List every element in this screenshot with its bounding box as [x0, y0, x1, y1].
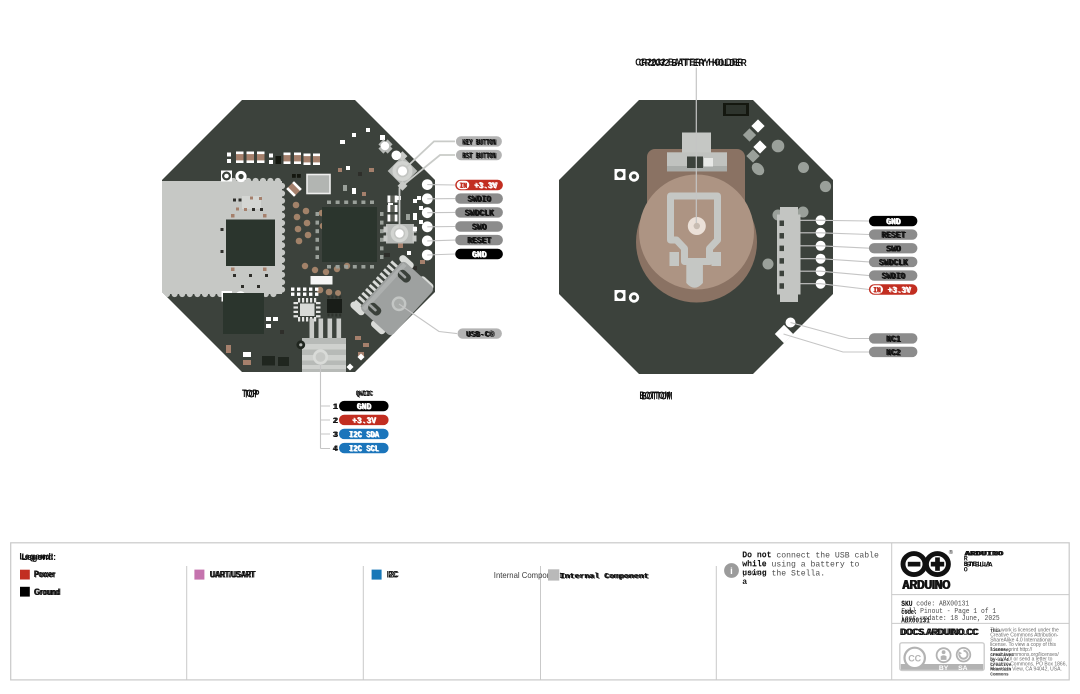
svg-text:Power: Power [35, 569, 56, 580]
svg-text:4: 4 [334, 444, 339, 454]
svg-text:Do not: Do not [742, 551, 771, 560]
svg-text:I2C SCL: I2C SCL [350, 444, 380, 454]
svg-text:+3.3V: +3.3V [889, 286, 913, 296]
svg-text:+3.3V: +3.3V [353, 416, 378, 426]
svg-text:SWDIO: SWDIO [883, 272, 907, 282]
svg-text:GND: GND [887, 217, 902, 227]
svg-text:+3.3V: +3.3V [475, 181, 499, 191]
svg-text:SWDIO: SWDIO [468, 195, 492, 205]
svg-text:a: a [742, 578, 747, 587]
svg-text:CC: CC [908, 653, 921, 663]
svg-text:SWO: SWO [887, 245, 902, 255]
svg-text:ARDUINO: ARDUINO [903, 578, 951, 592]
svg-text:BOTTOM: BOTTOM [642, 390, 673, 402]
svg-text:STELLA: STELLA [966, 561, 993, 568]
svg-text:ARDUINO: ARDUINO [965, 551, 1004, 558]
svg-text:Internal Component: Internal Component [561, 573, 650, 581]
svg-text:GND: GND [357, 402, 372, 412]
svg-text:ABX00131: ABX00131 [901, 618, 930, 626]
svg-text:Ground: Ground [35, 586, 61, 597]
svg-text:UART/USART: UART/USART [211, 569, 256, 580]
svg-text:while: while [742, 559, 767, 569]
svg-text:USB-C®: USB-C® [467, 330, 495, 340]
svg-text:Legend:: Legend: [21, 554, 50, 562]
svg-text:O: O [964, 567, 968, 574]
svg-text:KEY BUTTON: KEY BUTTON [463, 139, 497, 148]
svg-text:CR2032 BATTERY HOLDER: CR2032 BATTERY HOLDER [639, 58, 747, 69]
svg-text:i: i [730, 566, 733, 577]
svg-text:TOP: TOP [244, 388, 260, 400]
svg-text:RST BUTTON: RST BUTTON [463, 152, 497, 161]
svg-text:IN: IN [460, 183, 468, 191]
svg-text:BY: BY [939, 665, 949, 672]
svg-text:®: ® [949, 549, 954, 556]
svg-text:1: 1 [334, 402, 339, 412]
svg-text:3: 3 [334, 430, 339, 440]
svg-text:SWDCLK: SWDCLK [466, 209, 496, 219]
svg-text:DOCS.ARDUINO.CC: DOCS.ARDUINO.CC [901, 627, 979, 637]
svg-text:code:: code: [901, 609, 917, 617]
svg-text:This: This [990, 629, 1001, 634]
svg-text:using: using [742, 568, 767, 578]
svg-text:SWO: SWO [473, 223, 488, 233]
svg-text:NC1: NC1 [887, 335, 902, 345]
svg-text:I2C: I2C [388, 569, 399, 580]
svg-text:SA: SA [958, 665, 968, 672]
svg-text:SWDCLK: SWDCLK [880, 258, 910, 268]
svg-text:I2C SDA: I2C SDA [350, 430, 381, 440]
svg-text:QWIIC: QWIIC [357, 391, 374, 399]
svg-text:IN: IN [874, 287, 882, 295]
svg-text:NC2: NC2 [887, 348, 902, 358]
svg-text:2: 2 [334, 416, 339, 426]
svg-text:RESET: RESET [882, 231, 907, 241]
svg-text:RESET: RESET [468, 237, 493, 247]
svg-text:GND: GND [473, 250, 488, 260]
svg-text:SKU: SKU [901, 601, 912, 609]
svg-text:Commons: Commons [990, 672, 1009, 677]
